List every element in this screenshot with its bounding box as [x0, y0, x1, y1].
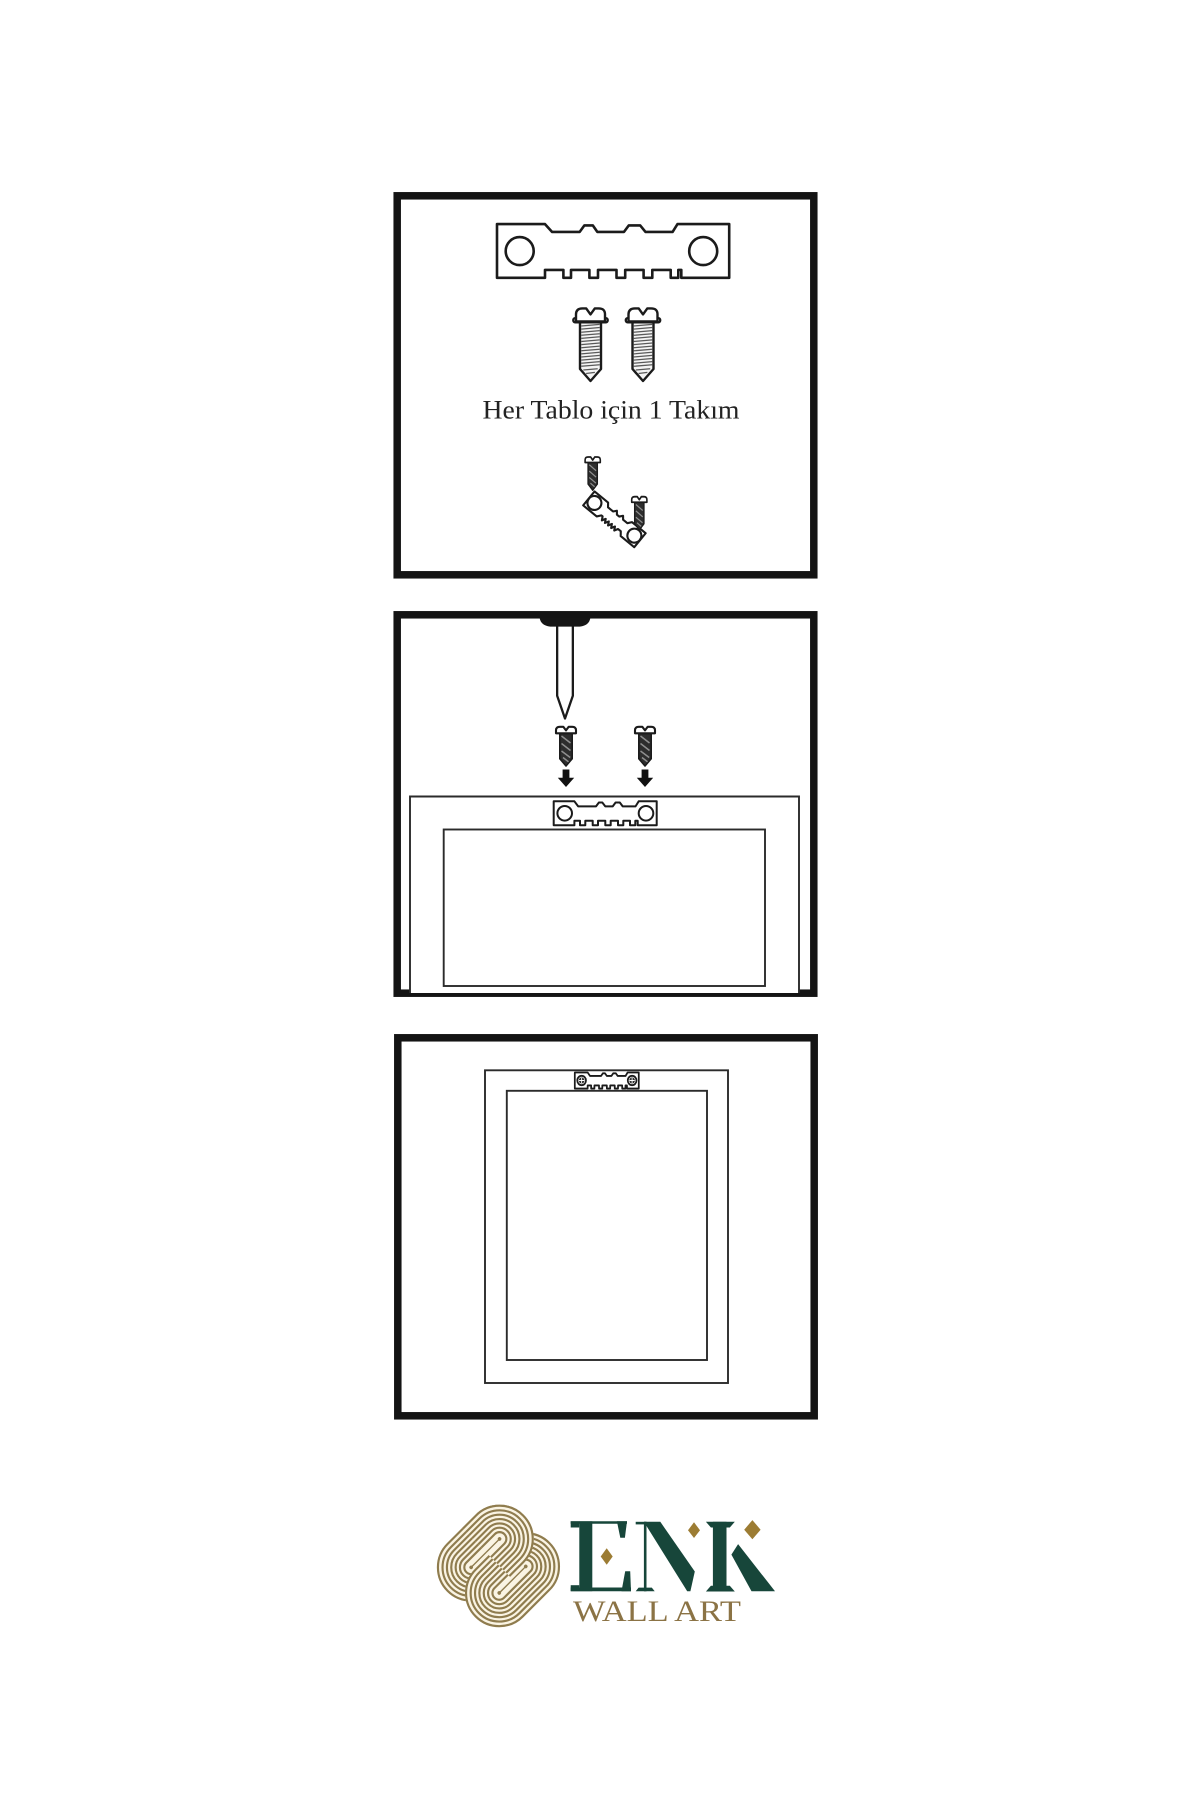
svg-text:WALL ART: WALL ART — [573, 1595, 741, 1628]
svg-text:Her Tablo için 1 Takım: Her Tablo için 1 Takım — [483, 394, 740, 424]
